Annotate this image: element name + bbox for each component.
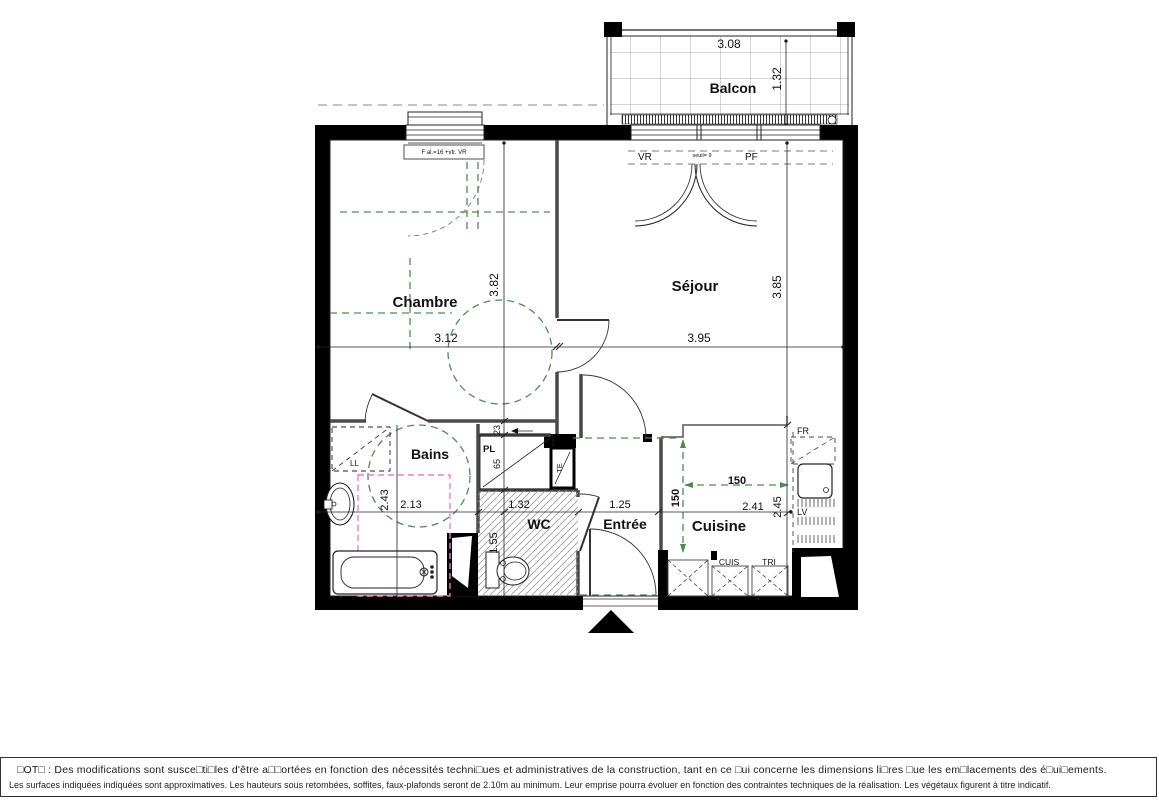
room-label-bains: Bains xyxy=(411,446,449,462)
appliance-label-fr: FR xyxy=(797,426,809,436)
kitchen-wall-stub xyxy=(658,550,668,596)
clearance-arrows xyxy=(680,439,789,553)
notes-line-1: □OT□ : Des modifications sont susce□ti□l… xyxy=(17,764,1107,776)
window-label-pf: PF xyxy=(745,152,758,163)
floor-plan: Balcon 3.08 1.32 Chambre 3.12 3.82 Séjou… xyxy=(0,0,1159,800)
sejour-door-arc xyxy=(583,375,646,438)
sejour-french-window xyxy=(628,125,833,226)
windows xyxy=(318,105,833,236)
appliance-label-cuis: CUIS xyxy=(719,557,740,567)
appliance-space-left xyxy=(668,560,708,596)
room-label-balcon: Balcon xyxy=(710,80,757,96)
french-door-arc-right xyxy=(695,164,757,226)
bains-door-arc xyxy=(365,395,372,421)
dim-clearance-vertical: 150 xyxy=(670,489,682,507)
fridge-space xyxy=(791,437,835,464)
chambre-window xyxy=(404,112,484,236)
closet-label-pl: PL xyxy=(483,444,495,455)
panel-label-te: TE xyxy=(555,463,564,473)
bathtub xyxy=(333,551,437,594)
room-label-wc: WC xyxy=(527,516,550,532)
dim-sejour-height: 3.85 xyxy=(770,275,784,299)
balcony-post-right xyxy=(837,22,855,37)
recycling-space xyxy=(752,566,788,596)
french-door-arc-left xyxy=(635,164,697,226)
dim-cuisine-height: 2.45 xyxy=(772,496,784,517)
chambre-door-arc xyxy=(557,320,609,372)
washing-machine-space xyxy=(332,427,390,471)
turning-circle-chambre xyxy=(448,300,552,404)
dim-balcon-width: 3.08 xyxy=(717,37,741,51)
dim-clearance-horizontal: 150 xyxy=(728,475,746,487)
room-label-cuisine: Cuisine xyxy=(692,518,746,535)
dim-balcon-depth: 1.32 xyxy=(770,67,784,91)
dim-cuisine-width: 2.41 xyxy=(742,501,763,513)
cooker-space xyxy=(712,566,748,596)
balcony-drain xyxy=(828,116,836,124)
exterior-walls xyxy=(315,125,858,610)
room-label-sejour: Séjour xyxy=(672,278,719,295)
dim-chambre-height: 3.82 xyxy=(487,273,501,297)
balcony-post-left xyxy=(604,22,622,37)
dim-bains-height: 2.43 xyxy=(379,489,391,510)
dimension-lines xyxy=(317,142,845,596)
window-spec-label: F al.=16 +vtr. VR xyxy=(421,150,467,156)
dim-sejour-width: 3.95 xyxy=(687,331,711,345)
balcony-sill-hatch xyxy=(622,115,837,124)
appliance-label-tri: TRI xyxy=(762,557,776,567)
dim-arrow xyxy=(511,428,518,434)
floor-plan-sheet: Balcon 3.08 1.32 Chambre 3.12 3.82 Séjou… xyxy=(0,0,1159,800)
appliance-label-lv: LV xyxy=(797,507,807,517)
window-label-vr: VR xyxy=(638,152,652,163)
dim-wc-height: 1.55 xyxy=(488,532,500,553)
interior-face-outline xyxy=(330,140,843,596)
room-label-chambre: Chambre xyxy=(392,294,457,311)
kitchen-sink xyxy=(798,464,832,498)
wc-door-arc xyxy=(580,494,599,497)
dim-recess: 23 xyxy=(492,425,502,435)
appliance-label-ll: LL xyxy=(350,459,359,468)
room-label-entree: Entrée xyxy=(603,516,647,532)
dim-chambre-width: 3.12 xyxy=(434,331,458,345)
window-label-seuil: seuil= 9 xyxy=(692,153,711,159)
bains-door-leaf xyxy=(372,394,428,421)
entrance-door-arc xyxy=(590,529,656,596)
notes-block: □OT□ : Des modifications sont susce□ti□l… xyxy=(0,757,1157,797)
dim-entree-width: 1.25 xyxy=(609,499,630,511)
counter-drainer xyxy=(795,499,837,507)
kitchen-wall-stub-small xyxy=(711,551,717,560)
notes-line-2: Les surfaces indiquées indiquées sont ap… xyxy=(9,780,1051,790)
window-swing-arc xyxy=(408,160,484,236)
dim-bains-width: 2.13 xyxy=(400,499,421,511)
dim-wc-width: 1.32 xyxy=(508,499,529,511)
dim-closet: 65 xyxy=(492,459,502,469)
entrance-marker-triangle xyxy=(588,610,634,633)
